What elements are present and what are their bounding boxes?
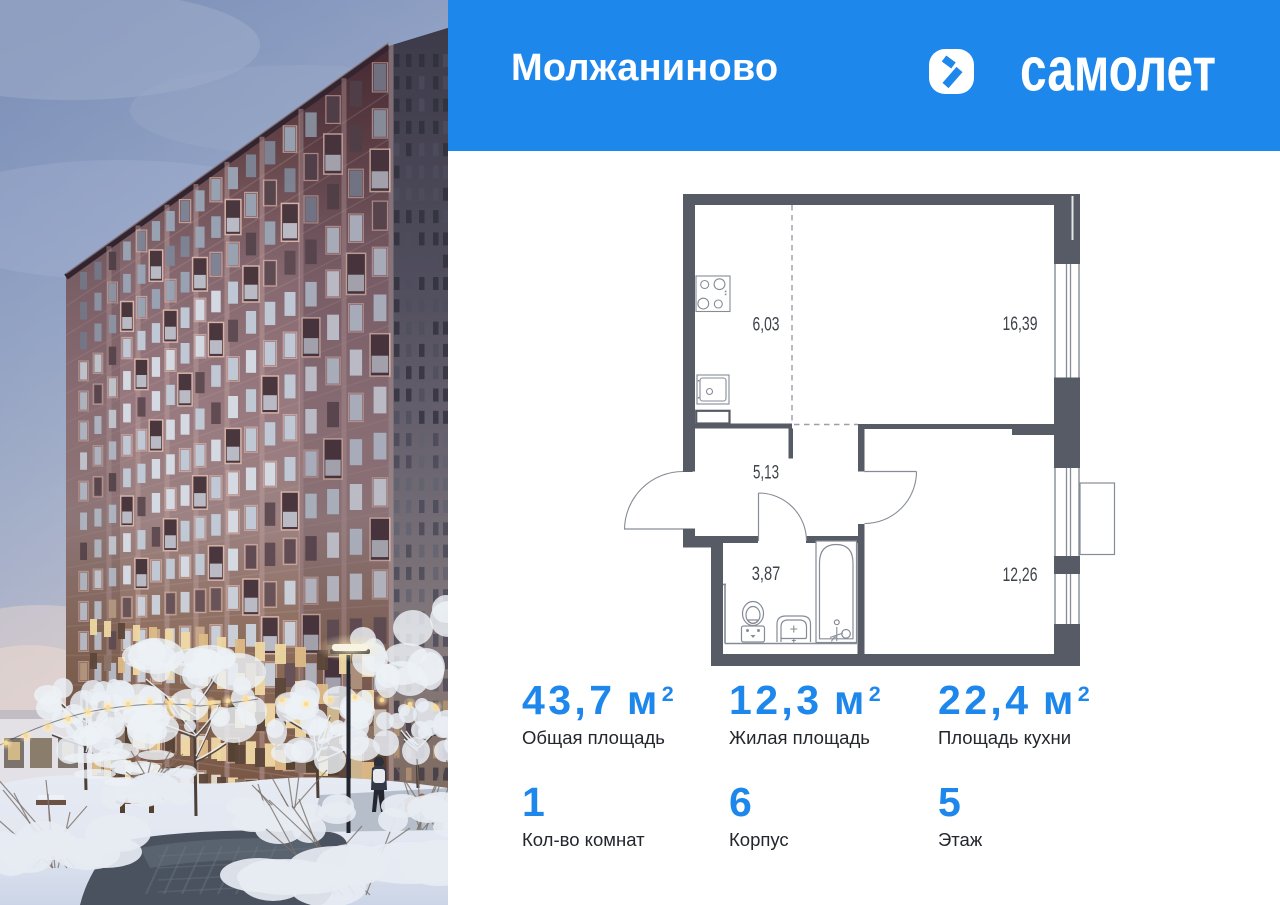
svg-text:5,13: 5,13 [753,462,779,484]
svg-text:12,26: 12,26 [1003,564,1038,586]
svg-text:самолет: самолет [1020,42,1216,102]
svg-text:3,87: 3,87 [752,563,781,585]
svg-text:16,39: 16,39 [1003,313,1038,335]
svg-text:6,03: 6,03 [753,314,780,336]
